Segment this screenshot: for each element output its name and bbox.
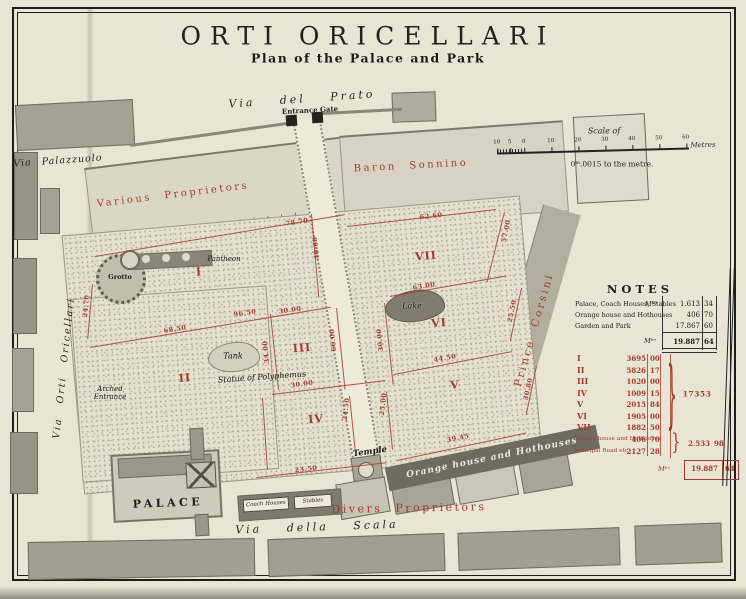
- area-table-rule: [647, 354, 648, 456]
- area-row-cents: 84: [650, 400, 660, 409]
- page-title: ORTI ORICELLARI: [181, 22, 556, 51]
- palace-label: PALACE: [133, 495, 204, 510]
- area-row-label: III: [577, 376, 588, 386]
- divers-proprietors-label: Divers Proprietors: [331, 500, 486, 516]
- pantheon-dome: [142, 255, 150, 263]
- parcel-numeral-V: V: [450, 378, 461, 392]
- notes-row-cents: 70: [704, 311, 713, 319]
- city-block: [267, 533, 445, 577]
- notes-table-rule: [716, 296, 717, 350]
- scale-tick: 60: [682, 134, 689, 140]
- stables-label-box: Stables: [294, 494, 333, 510]
- scale-ratio-label: 0ᵐ.0015 to the metre.: [571, 160, 654, 169]
- area-row-value: 2015: [614, 400, 646, 409]
- gate-post: [286, 115, 298, 127]
- notes-table-rule: [662, 332, 717, 333]
- notes-total-unit: Mᵗʳⁱ: [644, 337, 656, 345]
- parcel-numeral-VI: VI: [431, 316, 448, 330]
- area-row-cents: 70: [650, 435, 660, 444]
- area-table-rule: [660, 354, 661, 456]
- area-row-cents: 28: [650, 447, 660, 456]
- parcel-numeral-I: I: [195, 265, 202, 278]
- area-row-value: 1905: [614, 412, 646, 421]
- other-subtotal-cents: 98: [714, 439, 724, 448]
- notes-row-label: Garden and Park: [575, 322, 631, 330]
- notes-title: NOTES: [607, 282, 673, 296]
- other-subtotal-value: 2.533: [684, 439, 710, 448]
- area-row-value: 1882: [614, 423, 646, 432]
- notes-row-value: 406: [664, 311, 700, 319]
- notes-table-rule: [702, 296, 703, 350]
- city-block: [15, 99, 135, 151]
- grotto-label: Grotto: [108, 273, 132, 281]
- area-row-value: 2127: [614, 447, 646, 456]
- notes-total-cents: 64: [704, 337, 714, 346]
- pantheon-dome: [162, 254, 170, 262]
- lake-label: Lake: [402, 302, 422, 311]
- notes-row-cents: 60: [704, 322, 713, 330]
- area-row-label: V: [577, 399, 583, 409]
- area-row-cents: 00: [650, 354, 660, 363]
- palace-cross-block: [185, 461, 216, 489]
- area-row-value: 1020: [614, 377, 646, 386]
- pantheon-dome: [182, 253, 190, 261]
- scale-tick: 10: [493, 139, 500, 145]
- area-row-cents: 17: [650, 366, 660, 375]
- city-block: [28, 538, 256, 580]
- parcel-numeral-II: II: [178, 371, 191, 385]
- area-row-label: II: [577, 365, 584, 375]
- parcel-numeral-IV: IV: [308, 412, 325, 426]
- area-row-cents: 15: [650, 389, 660, 398]
- city-block: [13, 258, 37, 334]
- notes-row-label: Orange house and Hothouses: [575, 311, 672, 319]
- city-block: [10, 432, 38, 494]
- area-row-cents: 00: [650, 412, 660, 421]
- area-row-value: 1009: [614, 389, 646, 398]
- notes-row-cents: 34: [704, 300, 713, 308]
- notes-row-unit: Mᵗʳⁱ: [645, 300, 657, 308]
- city-block: [40, 188, 60, 234]
- parcel-sum-bracket: }: [667, 351, 677, 438]
- palace-wing: [189, 428, 205, 461]
- scale-tick: 20: [574, 137, 581, 143]
- scale-tick: 30: [601, 137, 608, 143]
- parcel-numeral-VII: VII: [415, 249, 438, 264]
- arched-entrance-label: Arched Entrance: [88, 385, 132, 401]
- pantheon-label: Pantheon: [207, 255, 240, 263]
- stables-label: Stables: [302, 497, 323, 504]
- tank-label: Tank: [223, 352, 242, 361]
- area-row-label: I: [577, 353, 581, 363]
- notes-total-value: 19.887: [664, 337, 700, 346]
- scale-tick: 5: [508, 139, 512, 145]
- coach-houses-label: Coach Houses: [246, 500, 286, 509]
- area-row-value: 406: [614, 435, 646, 444]
- scale-tick: 50: [655, 135, 662, 141]
- parcel-numeral-III: III: [292, 341, 312, 356]
- scale-title: Scale of: [588, 127, 620, 136]
- area-row-value: 3695: [614, 354, 646, 363]
- area-row-cents: 00: [650, 377, 660, 386]
- city-block: [12, 348, 34, 412]
- area-total-unit: Mᵗʳⁱ: [658, 465, 670, 473]
- notes-table-rule: [662, 296, 663, 350]
- pantheon-rotunda: [120, 250, 140, 270]
- scale-tick: 40: [628, 136, 635, 142]
- notes-row-value: 1.613: [664, 300, 700, 308]
- area-row-label: IV: [577, 388, 587, 398]
- notes-row-value: 17.867: [664, 322, 700, 330]
- area-row-value: 5826: [614, 366, 646, 375]
- parcel-subtotal: 17353: [683, 390, 712, 399]
- page-subtitle: Plan of the Palace and Park: [251, 51, 485, 66]
- other-sum-bracket: }: [671, 429, 680, 456]
- area-total-value: 19.887: [686, 464, 718, 473]
- scale-unit-label: Metres: [690, 141, 715, 150]
- area-row-label: VII: [577, 422, 591, 432]
- scan-edge-shadow: [0, 586, 746, 599]
- notes-row-label: Palace, Coach Houses, Stables: [575, 300, 676, 308]
- area-row-cents: 50: [650, 423, 660, 432]
- scale-tick: 0: [522, 139, 526, 145]
- city-block: [457, 527, 620, 571]
- scale-tick: 10: [547, 138, 554, 144]
- city-block: [634, 522, 722, 565]
- area-row-label: VI: [577, 411, 587, 421]
- palace-wing: [194, 514, 209, 537]
- map-sheet: ORTI ORICELLARI Plan of the Palace and P…: [0, 0, 746, 599]
